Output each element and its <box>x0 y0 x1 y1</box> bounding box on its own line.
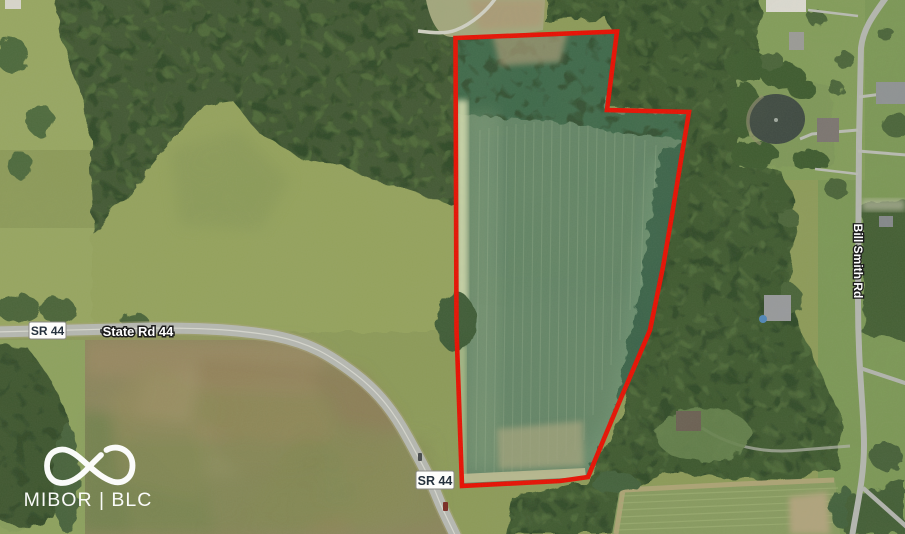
svg-text:Bill Smith Rd: Bill Smith Rd <box>851 224 865 299</box>
svg-text:MIBOR | BLC: MIBOR | BLC <box>24 489 153 511</box>
svg-text:SR 44: SR 44 <box>31 324 65 338</box>
svg-text:State Rd 44: State Rd 44 <box>103 324 175 339</box>
svg-text:SR 44: SR 44 <box>418 474 453 488</box>
